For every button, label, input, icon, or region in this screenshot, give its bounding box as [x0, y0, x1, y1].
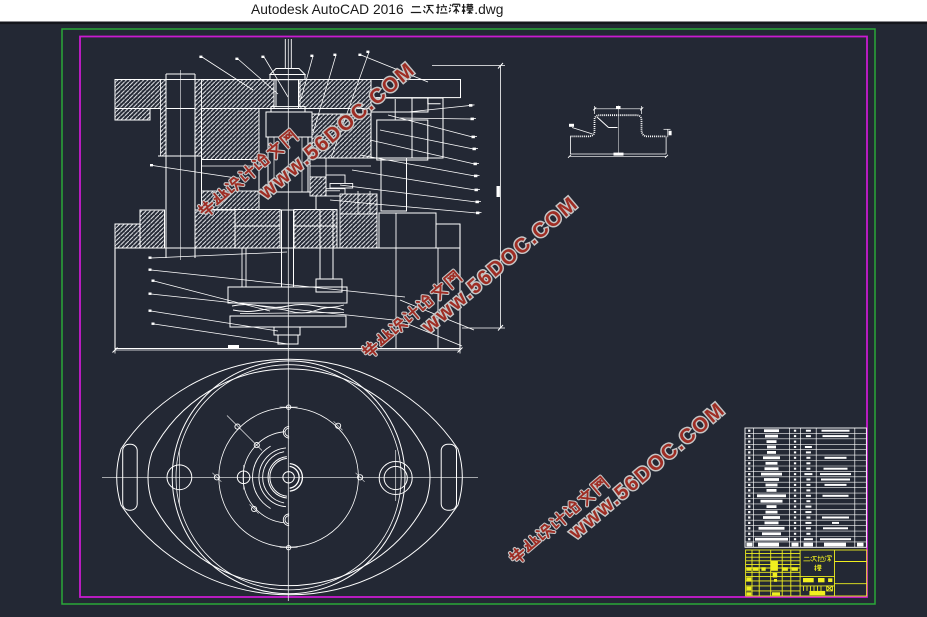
svg-text:Autodesk AutoCAD 2016: Autodesk AutoCAD 2016 [251, 2, 404, 17]
svg-text:.dwg: .dwg [474, 2, 503, 17]
